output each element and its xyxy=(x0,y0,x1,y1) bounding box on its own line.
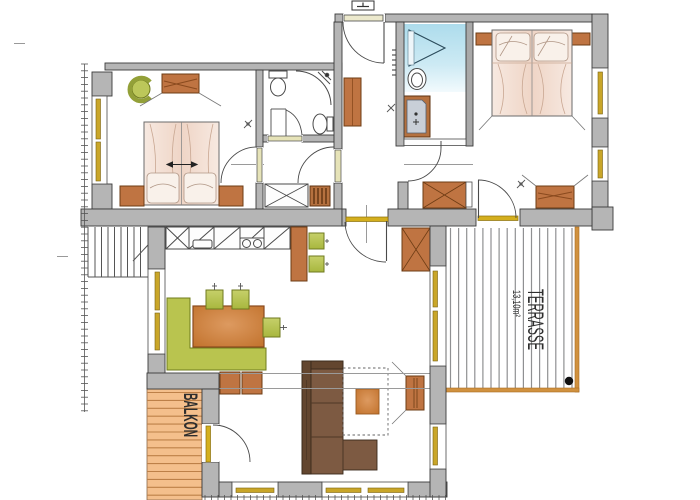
svg-text:BALKON: BALKON xyxy=(179,393,200,437)
svg-text:13,10m²: 13,10m² xyxy=(510,290,522,317)
svg-text:TERRASSE: TERRASSE xyxy=(523,289,548,350)
